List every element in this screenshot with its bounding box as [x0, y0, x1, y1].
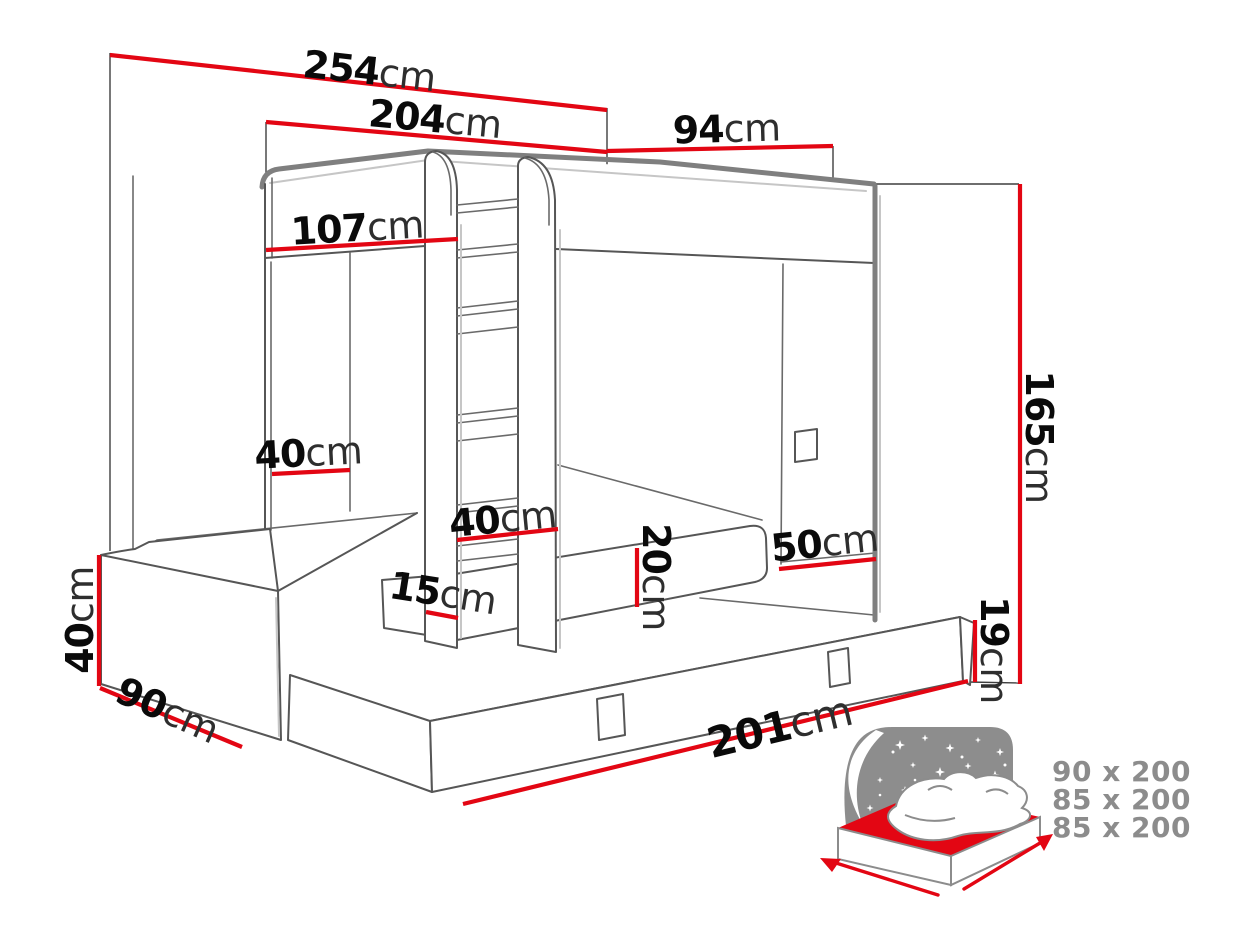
label-20cm: 20cm: [634, 523, 678, 631]
ladder-rung: [457, 416, 518, 423]
star-dot: [961, 756, 964, 759]
label-204cm: 204cm: [367, 91, 504, 147]
mattress-size: 85 x 200: [1052, 811, 1191, 844]
label-165cm: 165cm: [1017, 370, 1061, 503]
ladder-rung: [457, 554, 518, 561]
star-dot: [879, 794, 882, 797]
diagram-canvas: 254cm 204cm 94cm 107cm 40cm 40cm 15cm 20…: [0, 0, 1258, 943]
star-dot: [1004, 764, 1007, 767]
bed-icon: [820, 727, 1053, 895]
label-94cm: 94cm: [672, 106, 781, 153]
ladder-rung: [457, 309, 518, 316]
drawer-handle: [597, 694, 625, 740]
drawer-left-face: [288, 675, 432, 792]
label-40cm-wall: 40cm: [253, 428, 363, 478]
drawer-right-face: [960, 617, 974, 685]
label-40cm-bench: 40cm: [58, 566, 102, 674]
ladder-rung: [457, 252, 518, 258]
back-wall-bottom-right: [558, 465, 762, 520]
label-19cm: 19cm: [972, 596, 1016, 704]
label-254cm: 254cm: [301, 42, 438, 100]
label-107cm: 107cm: [290, 202, 425, 253]
mattress-size-list: 90 x 200 85 x 200 85 x 200: [1052, 755, 1191, 844]
star-dot: [914, 779, 917, 782]
star-dot: [892, 751, 895, 754]
drawer-handle: [828, 648, 850, 687]
ladder-right-rail: [518, 157, 556, 652]
ladder-rung: [457, 408, 518, 415]
right-wall-handle: [795, 429, 817, 462]
base-bottom-edge: [700, 598, 874, 615]
ladder-rung: [457, 301, 518, 308]
bunk-bed-dimension-drawing: 254cm 204cm 94cm 107cm 40cm 40cm 15cm 20…: [0, 0, 1258, 943]
ladder-rung: [457, 434, 518, 441]
ladder-rung: [457, 327, 518, 334]
